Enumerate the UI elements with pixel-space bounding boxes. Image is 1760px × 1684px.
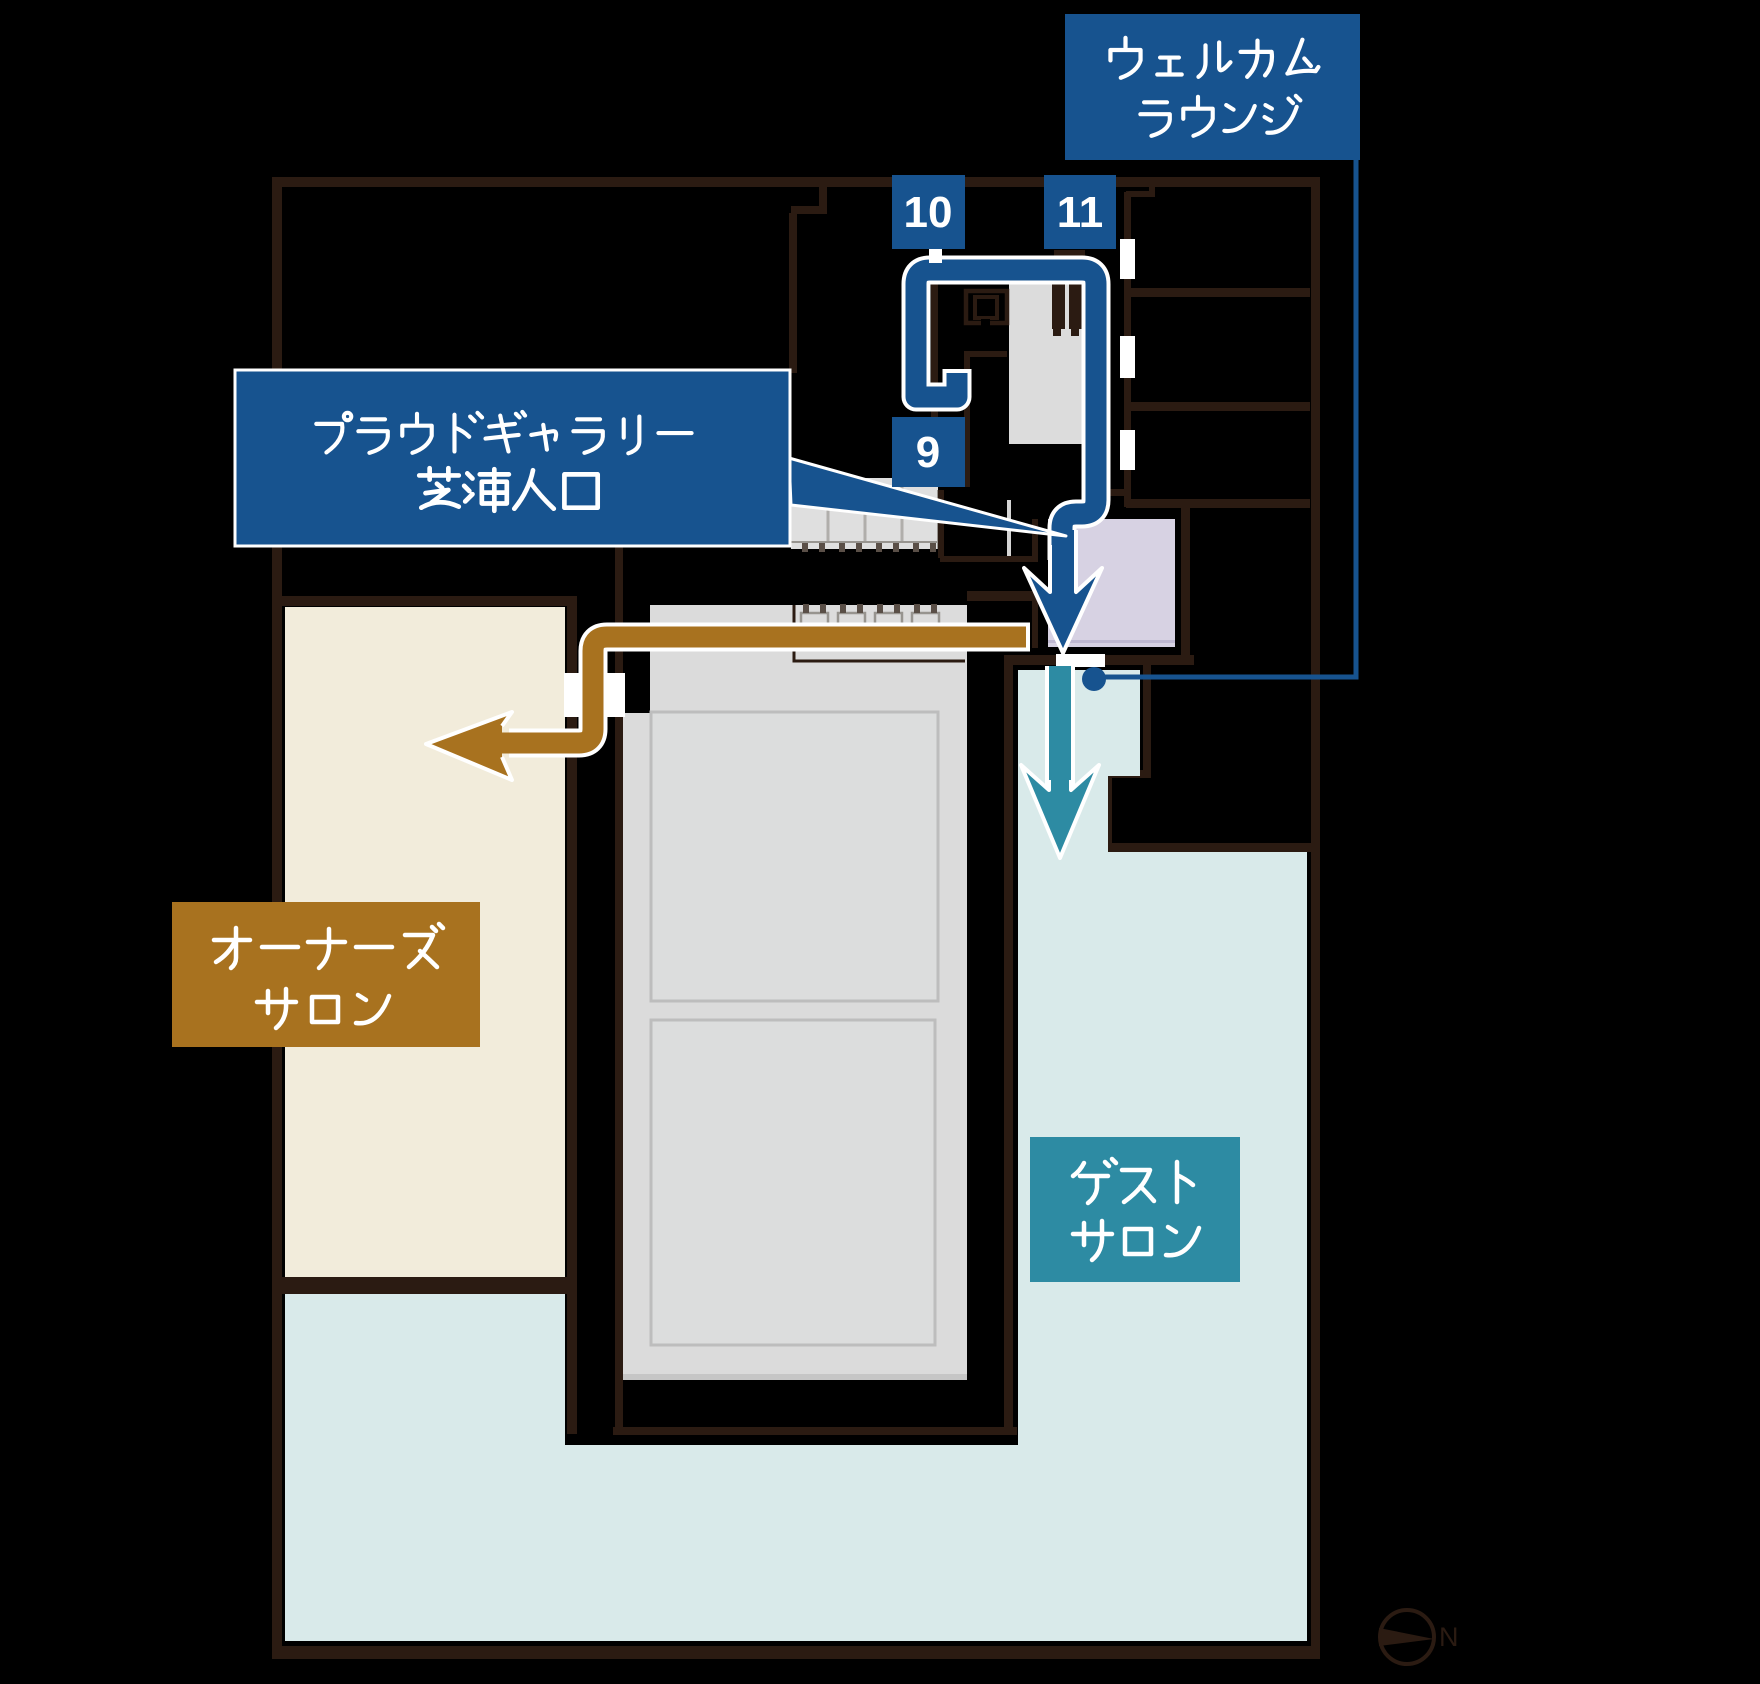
svg-text:10: 10	[904, 188, 953, 237]
svg-text:N: N	[1439, 1622, 1459, 1652]
svg-text:11: 11	[1057, 188, 1104, 237]
svg-text:9: 9	[916, 428, 940, 477]
